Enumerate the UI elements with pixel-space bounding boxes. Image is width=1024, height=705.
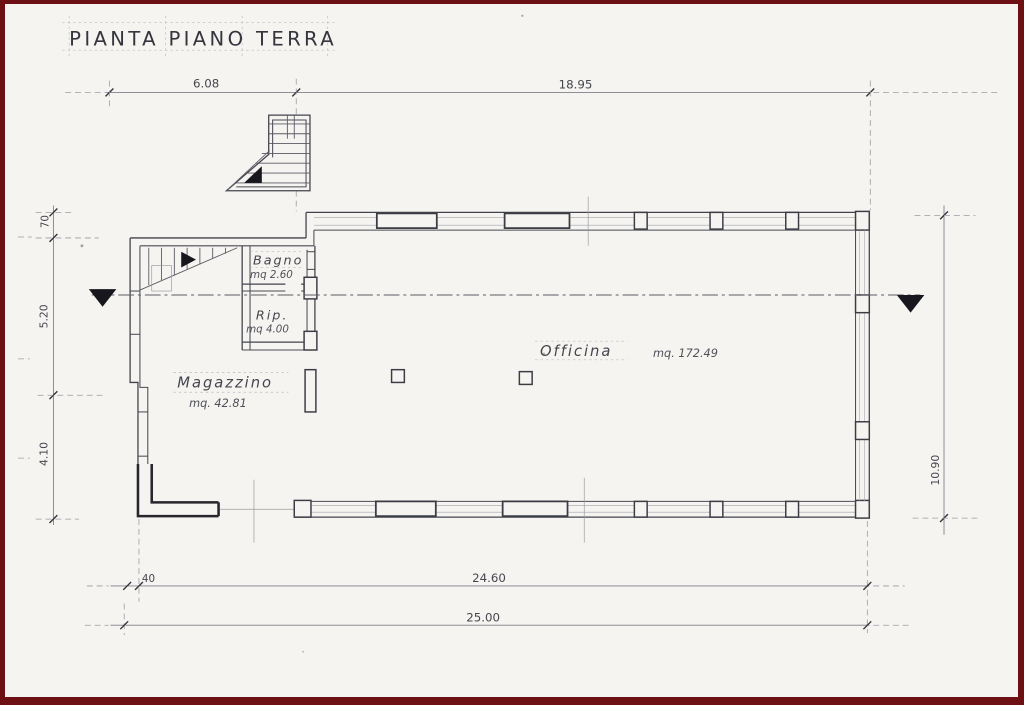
room-labels: Bagno mq 2.60 Rip. mq 4.00 Officina mq. … (173, 252, 718, 410)
heavy-corner-wall (138, 464, 219, 516)
interior-columns (392, 370, 533, 385)
pillar-right-1 (856, 295, 870, 313)
room-area-magazzino: mq. 42.81 (189, 397, 247, 410)
window-bottom-1 (376, 501, 436, 516)
stair-up-arrow (181, 252, 196, 268)
stair-detail (226, 115, 310, 191)
right-dimension-chain: 10.90 (913, 206, 978, 535)
dim-bottom-offset: 40 (142, 573, 155, 585)
pillar-top-3 (786, 212, 799, 229)
dim-left-lower: 4.10 (38, 442, 51, 466)
scanned-floor-plan: PIANTA PIANO TERRA 6.08 18.95 (0, 0, 1024, 705)
dim-left-middle: 5.20 (38, 304, 51, 328)
pillar-top-2 (710, 212, 723, 229)
wall-stub (305, 370, 316, 412)
witness-lines (18, 197, 867, 635)
bottom-dimension-chains: 40 24.60 25.00 (85, 571, 911, 629)
section-line (89, 289, 925, 313)
window-top-2 (505, 213, 570, 228)
column-1 (392, 370, 405, 383)
pillar-top-right-corner (856, 211, 870, 230)
pillar-top-1 (634, 212, 647, 229)
pillar-bottom-left (294, 500, 311, 517)
drawing-title: PIANTA PIANO TERRA (69, 27, 337, 50)
building-walls (130, 211, 869, 518)
pillar-bottom-1 (634, 501, 647, 517)
top-dimension-chain: 6.08 18.95 (65, 77, 999, 212)
title-block: PIANTA PIANO TERRA (62, 16, 337, 57)
pier-bagno-right (304, 277, 317, 299)
window-bottom-2 (503, 501, 568, 516)
floor-plan-drawing: PIANTA PIANO TERRA 6.08 18.95 (5, 4, 1018, 697)
interior-stair (140, 248, 237, 291)
pillar-bottom-right-corner (856, 500, 870, 518)
dim-left-upper: 70 (40, 215, 52, 228)
dim-bottom-total: 25.00 (466, 610, 500, 624)
left-dimension-chain: 70 5.20 4.10 (36, 206, 107, 525)
room-area-rip: mq 4.00 (246, 323, 289, 335)
room-area-bagno: mq 2.60 (250, 269, 293, 281)
room-label-rip: Rip. (256, 309, 288, 324)
dim-bottom-inner: 24.60 (472, 571, 506, 585)
dim-right-height: 10.90 (929, 455, 942, 486)
dim-top-left: 6.08 (193, 77, 219, 91)
pillar-bottom-2 (710, 501, 723, 517)
pillar-right-2 (856, 422, 870, 440)
window-top-1 (377, 213, 437, 228)
section-marker-left (89, 289, 117, 307)
room-label-officina: Officina (540, 343, 612, 360)
column-2 (519, 372, 532, 385)
pillar-bottom-3 (786, 501, 799, 517)
pier-rip-right (304, 331, 317, 350)
room-label-magazzino: Magazzino (177, 374, 273, 391)
room-label-bagno: Bagno (253, 253, 303, 268)
room-area-officina: mq. 172.49 (653, 347, 718, 360)
dim-top-right: 18.95 (559, 78, 593, 92)
section-marker-right (897, 295, 925, 313)
